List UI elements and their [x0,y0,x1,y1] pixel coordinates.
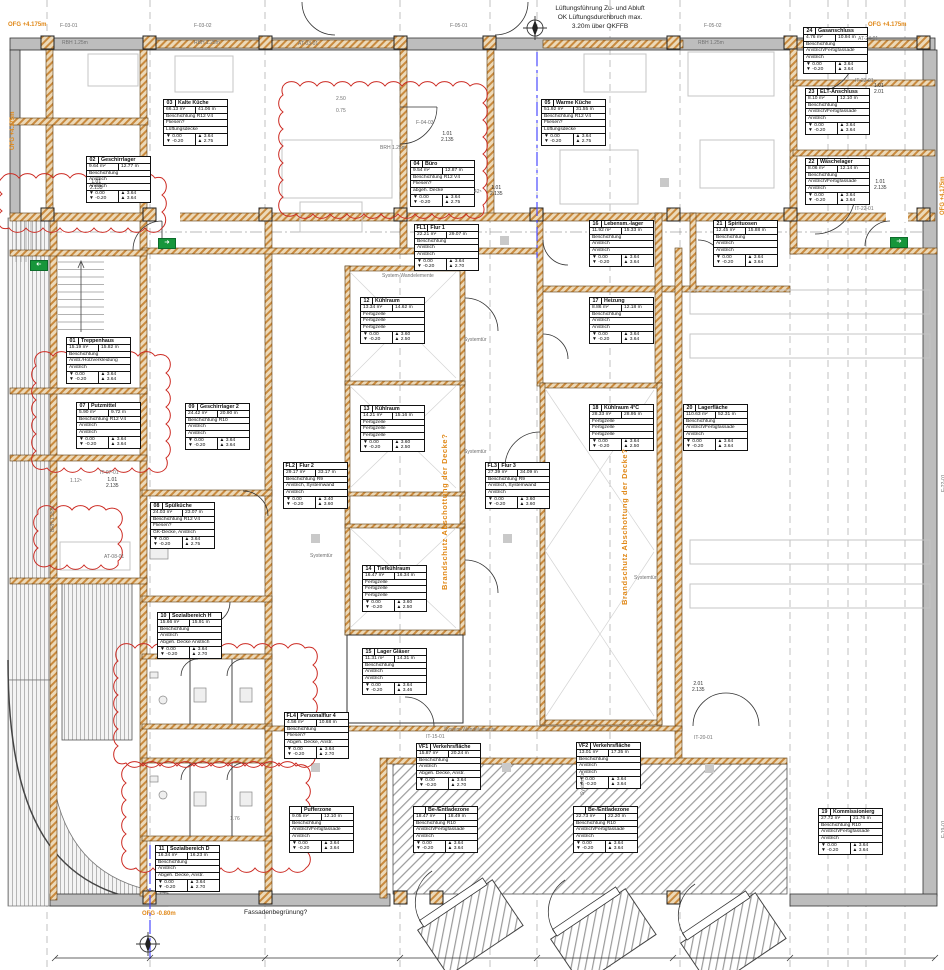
level-floor: ▼ -0.20 [806,198,838,204]
level-ceiling: ▲ 3.64 [218,443,250,449]
room-perimeter: 12.10 m [838,96,869,102]
level-ceiling: ▲ 3.64 [446,846,478,852]
room-finish: Beschichtung [67,352,130,359]
room-perimeter: 15.16 m [393,413,424,419]
annotation-brh1: BRH 1.25m [50,506,56,532]
room-number [574,807,586,813]
level-ceiling: ▲ 2.70 [188,885,220,891]
annotation-f0302: F-03-02 [194,23,212,29]
room-number: 03 [164,100,176,106]
exit-sign-icon: ➜ [890,237,908,248]
room-finish: Abgeh. Decke, Anstr. [417,771,480,778]
room-label-VF1: VF1Verkehrsfläche15.87 m²20.24 mBeschich… [416,743,481,790]
level-floor: ▼ -0.20 [151,542,183,548]
room-finish: Anstrich [67,365,130,372]
room-label-01: 01Treppenhaus15.19 m²15.82 mBeschichtung… [66,337,131,384]
level-floor: ▼ -0.20 [804,67,836,73]
room-finish: Beschichtung R10 [574,821,637,828]
level-ceiling: ▲ 3.64 [622,260,654,266]
annotation-st4: Systemtür [634,575,657,581]
level-ceiling: ▲ 2.70 [449,783,481,789]
room-number: 09 [186,404,198,410]
level-ceiling: ▲ 3.64 [622,337,654,343]
level-floor: ▼ -0.20 [186,443,218,449]
room-finish: Beschichtung [290,821,353,828]
annotation-f0403: F-04-03 [416,120,434,126]
room-perimeter: 10.68 m [317,720,348,726]
room-name: Lagerfläche [696,405,730,411]
level-floor: ▼ -0.20 [361,445,393,451]
room-name: Flur 3 [499,463,517,469]
room-number: FL4 [285,713,298,719]
level-floor: ▼ -0.20 [285,752,317,758]
room-label-04: 04Büro9.54 m²12.87 mBeschichtung R12 V4F… [410,160,475,207]
annotation-it07: IT-07-01 [100,470,119,476]
level-ceiling: ▲ 3.46 [395,688,427,694]
room-perimeter: 52.31 m [716,412,747,418]
annotation-d8: 1.01 2.135 [106,478,119,489]
room-finish: Anstrich, Systemwand [284,483,347,490]
room-finish: Fertigzelle [590,432,653,439]
annotation-at24: AT-24-01 [858,36,878,42]
annotation-ofgL: OFG +4.175m [10,111,16,150]
room-name: Warme Küche [554,100,593,106]
level-floor: ▼ -0.20 [417,783,449,789]
room-name: Flur 1 [428,225,446,231]
room-label-05: 05Warme Küche51.92 m²31.55 mBeschichtung… [541,99,606,146]
room-name: Putzmittel [89,403,118,409]
room-number: 20 [684,405,696,411]
level-floor: ▼ -0.20 [414,846,446,852]
room-finish: Anstrich [806,186,869,193]
room-finish: Anstrich/Fertigfassade [804,48,867,55]
level-floor: ▼ -0.20 [77,442,109,448]
level-floor: ▼ -0.20 [363,605,395,611]
room-finish: Anstrich [363,669,426,676]
room-perimeter: 18.49 m [446,814,477,820]
annotation-ofgB: OFG -0.80m [142,911,176,917]
annotation-d9: 2.50 [336,96,346,102]
room-number: FL3 [486,463,499,469]
level-floor: ▼ -0.20 [164,139,196,145]
room-perimeter: 15.82 m [99,345,130,351]
room-finish: Beschichtung R10 [819,823,882,830]
room-finish: Beschichtung [158,627,221,634]
room-perimeter: 28.95 m [622,412,653,418]
annotation-d6: 1.01 2.135 [874,180,887,191]
room-finish: Beschichtung R9 [284,477,347,484]
room-area: 8.86 m² [590,305,622,311]
room-label-16: 16Lebensm.-lager11.92 m²15.33 mBeschicht… [589,220,654,267]
room-area: 66.13 m² [164,107,196,113]
annotation-it15: IT-15-01 [426,734,445,740]
level-ceiling: ▲ 2.70 [190,652,222,658]
room-finish: Anstrich [415,245,478,252]
room-area: 9.64 m² [87,164,119,170]
room-finish: Anstrich [804,55,867,62]
room-finish: Fertigzelle [361,426,424,433]
room-area: 8.10 m² [806,96,838,102]
room-label-23: 23ELT-Anschluss8.10 m²12.10 mBeschichtun… [805,88,870,135]
room-finish: Anstrich [156,866,219,873]
room-perimeter: 29.07 m [447,232,478,238]
level-ceiling: ▲ 2.75 [574,139,606,145]
level-ceiling: ▲ 3.64 [836,67,868,73]
room-finish: Fliesen? [411,181,474,188]
annotation-d5: 1.01 2.01 [874,84,884,95]
room-perimeter: 9.72 m [109,410,140,416]
level-floor: ▼ -0.20 [156,885,188,891]
room-label-20: 20Lagerfläche110.63 m²52.31 mBeschichtun… [683,404,748,451]
room-label-10: 10Sozialbereich H15.66 m²15.91 mBeschich… [157,612,222,659]
room-name: Tiefkühlraum [375,566,412,572]
room-perimeter: 12.18 m [622,305,653,311]
annotation-st2: Systemtür [464,449,487,455]
room-finish: Anstrich/Fertigfassade [819,829,882,836]
room-finish: Anstrich/Fertigfassade [574,827,637,834]
room-number [414,807,426,813]
level-ceiling: ▲ 3.64 [119,196,151,202]
loading-zone [393,764,787,970]
room-area: 4.56 m² [285,720,317,726]
level-floor: ▼ -0.20 [87,196,119,202]
annotation-rbh2: RBH 1.25m [194,40,220,46]
room-finish: Fertigzelle [361,318,424,325]
room-perimeter: 15.91 m [190,620,221,626]
room-perimeter: 31.55 m [574,107,605,113]
room-area: 15.66 m² [158,620,190,626]
room-perimeter: 12.10 m [322,814,353,820]
staircase [58,261,104,332]
room-finish: Beschichtung R12 V4 [542,114,605,121]
annotation-f0501: F-05-01 [450,23,468,29]
room-finish: Anstrich [574,834,637,841]
room-name: ELT-Anschluss [818,89,860,95]
room-finish: Beschichtung R12 V4 [411,175,474,182]
room-finish: Abgeh. Decke, Anstr. [156,873,219,880]
room-name: Gasanschluss [816,28,856,34]
room-perimeter: 16.23 m [188,853,219,859]
level-ceiling: ▲ 3.60 [518,502,550,508]
room-name: Geschirrlager 2 [198,404,241,410]
room-label-BE1: Be-/Entladezone18.47 m²18.49 mBeschichtu… [413,806,478,853]
room-finish: Anstrich [590,241,653,248]
room-finish: Beschichtung [806,103,869,110]
room-number: 08 [151,503,163,509]
room-number: VF2 [577,743,591,749]
room-finish: Anstrich [284,490,347,497]
annotation-d10: 0.75 [336,108,346,114]
room-finish: Fliesen? [542,120,605,127]
room-finish: Beschichtung R10 [186,418,249,425]
level-floor: ▼ -0.20 [361,337,393,343]
room-area: 27.72 m² [819,816,851,822]
room-name: Lebensm.-lager [602,221,645,227]
room-area: 13.01 m² [577,750,609,756]
annotation-fass: Fassadenbegrünung? [244,909,307,916]
room-finish: Anstrich/Fertigfassade [684,425,747,432]
room-label-24: 24Gasanschluss4.76 m²10.94 mBeschichtung… [803,27,868,74]
room-name: Be-/Entladezone [426,807,471,813]
room-finish: Beschichtung [590,312,653,319]
room-label-07: 07Putzmittel5.90 m²9.72 mBeschichtung R1… [76,402,141,449]
room-number: 10 [158,613,170,619]
room-area: 24.42 m² [186,411,218,417]
room-perimeter: 34.09 m [518,470,549,476]
room-finish: Anstrich [363,676,426,683]
room-finish: Beschichtung [285,727,348,734]
annotation-it22: IT-22-01 [855,206,874,212]
level-ceiling: ▲ 2.50 [393,445,425,451]
annotation-brh2: BRH 1.25m [380,145,406,151]
room-finish: Beschichtung R9 [486,477,549,484]
room-area: 22.73 m² [574,814,606,820]
room-number: 01 [67,338,79,344]
level-ceiling: ▲ 2.75 [443,200,475,206]
annotation-bs2: Brandschutz Abschottung der Decke? [620,449,629,605]
annotation-d7: 1.12⁵ [70,478,82,484]
level-ceiling: ▲ 3.64 [716,444,748,450]
room-number: FL1 [415,225,428,231]
level-floor: ▼ -0.20 [158,652,190,658]
room-finish: Anstrich [590,325,653,332]
room-area: 5.90 m² [77,410,109,416]
room-finish: Anstrich/Fertigfassade [290,827,353,834]
room-number: 07 [77,403,89,409]
annotation-f0502: F-05-02 [704,23,722,29]
room-name: Heizung [602,298,627,304]
room-finish: Anstrich [590,248,653,255]
level-floor: ▼ -0.20 [290,846,322,852]
room-number: 12 [361,298,373,304]
level-ceiling: ▲ 2.50 [393,337,425,343]
level-ceiling: ▲ 3.60 [316,502,348,508]
room-area: 9.54 m² [411,168,443,174]
annotation-d1: 1.01 2.135 [441,132,454,143]
level-ceiling: ▲ 2.75 [196,139,228,145]
room-finish: Abgeh. Decke Anstrich [158,640,221,647]
room-name: Kommissionierg [831,809,877,815]
room-finish: Fliesen? [151,523,214,530]
room-finish: Anstrich/Fertigfassade [414,827,477,834]
room-area: 29.17 m² [284,470,316,476]
annotation-lueft2: OK Lüftungsdurchbruch max. [558,14,643,21]
exit-sign-icon: ➜ [158,238,176,249]
room-label-18: 18Kühlraum 4°C28.33 m²28.95 mFertigzelle… [589,404,654,451]
annotation-it23: IT-23-01 [855,78,874,84]
room-name: Be-/Entladezone [586,807,631,813]
room-perimeter: 23.07 m [183,510,214,516]
room-finish: Anstrich, Systemwand [486,483,549,490]
room-perimeter: 12.87 m [443,168,474,174]
room-finish: Fliesen? [285,733,348,740]
annotation-d3: 1.01 2.135 [490,186,503,197]
annotation-d4: 1.01 2.135 [90,180,103,191]
room-finish: Beschichtung [806,173,869,180]
room-number: 11 [156,846,168,852]
room-number: 13 [361,406,373,412]
room-finish: Anstrich [186,424,249,431]
annotation-swe1: System-Wandelemente [382,273,434,279]
room-finish: Fertigzelle [361,433,424,440]
room-finish: Fertigzelle [361,325,424,332]
level-ceiling: ▲ 3.64 [109,442,141,448]
room-finish: Beschichtung [577,757,640,764]
level-ceiling: ▲ 3.64 [322,846,354,852]
room-finish: Anstrich [577,770,640,777]
room-perimeter: 17.35 m [609,750,640,756]
room-name: Lager Gläser [375,649,411,655]
room-area: 14.21 m² [361,413,393,419]
room-finish: Anstrich [486,490,549,497]
annotation-st1: Systemtür [464,337,487,343]
room-finish: Beschichtung [415,239,478,246]
room-label-11: 11Sozialbereich D16.34 m²16.23 mBeschich… [155,845,220,892]
annotation-st5: Systemtür [580,772,586,795]
room-finish: Anstr./Holzverkleidung [67,358,130,365]
level-floor: ▼ -0.20 [819,848,851,854]
room-label-FL1: FL1Flur 122.21 m²29.07 mBeschichtungAnst… [414,224,479,271]
room-number: 18 [590,405,602,411]
room-name: Sozialbereich H [170,613,213,619]
room-finish: Anstrich/Fertigfassade [806,109,869,116]
room-name: Geschirrlager [99,157,137,163]
room-number: 24 [804,28,816,34]
room-number: 14 [363,566,375,572]
room-label-17: 17Heizung8.86 m²12.18 mBeschichtungAnstr… [589,297,654,344]
level-floor: ▼ -0.20 [806,128,838,134]
room-finish: Beschichtung R12 V4 [164,114,227,121]
level-floor: ▼ -0.20 [363,688,395,694]
room-name: Kühlraum [373,406,402,412]
room-label-09: 09Geschirrlager 224.42 m²20.90 mBeschich… [185,403,250,450]
room-finish: Fertigzelle [361,312,424,319]
room-name: Pufferzone [302,807,333,813]
room-number: 21 [714,221,726,227]
room-finish: Beschichtung [87,171,150,178]
room-finish: Beschichtung [156,860,219,867]
room-name: Kühlraum [373,298,402,304]
level-floor: ▼ -0.20 [590,444,622,450]
room-area: 16.47 m² [363,573,395,579]
room-area: 13.34 m² [361,305,393,311]
room-finish: Beschichtung [714,235,777,242]
room-area: 11.92 m² [590,228,622,234]
level-floor: ▼ -0.20 [684,444,716,450]
annotation-st3: Systemtür [310,553,333,559]
room-label-14: 14Tiefkühlraum16.47 m²16.34 mFertigzelle… [362,565,427,612]
level-floor: ▼ -0.20 [67,377,99,383]
room-name: Büro [423,161,439,167]
room-perimeter: 20.24 m [449,751,480,757]
room-perimeter: 20.90 m [218,411,249,417]
room-finish: Fliesen? [164,120,227,127]
room-area: 8.06 m² [806,166,838,172]
room-finish: Anstrich [414,834,477,841]
room-finish: Anstrich [819,836,882,843]
room-finish: Fertigzelle [363,580,426,587]
room-finish: Beschichtung [804,42,867,49]
room-perimeter: 12.77 m [119,164,150,170]
level-ceiling: ▲ 3.64 [99,377,131,383]
room-area: 18.47 m² [414,814,446,820]
room-finish: Anstrich [577,763,640,770]
doors-layer [114,2,890,780]
room-area: 12.45 m² [714,228,746,234]
terrace-deck [8,218,175,906]
room-label-FL2: FL2Flur 229.17 m²33.17 mBeschichtung R9A… [283,462,348,509]
room-perimeter: 21.76 m [851,816,882,822]
level-ceiling: ▲ 3.64 [838,198,870,204]
level-ceiling: ▲ 3.64 [851,848,883,854]
room-area: 15.19 m² [67,345,99,351]
room-number: VF1 [417,744,431,750]
room-finish: Fertigzelle [363,586,426,593]
room-label-BE2: Be-/Entladezone22.73 m²22.20 mBeschichtu… [573,806,638,853]
room-finish: Anstrich [806,116,869,123]
room-label-22: 22Wäschelager8.06 m²12.14 mBeschichtungA… [805,158,870,205]
room-finish: Anstrich [186,431,249,438]
level-ceiling: ▲ 3.64 [609,782,641,788]
annotation-lueft1: Lüftungsführung Zu- und Abluft [555,5,644,12]
level-floor: ▼ -0.20 [574,846,606,852]
room-name: Personalflur 4 [298,713,337,719]
room-finish: Beschichtung R12 V4 [151,517,214,524]
room-area: 51.92 m² [542,107,574,113]
room-area: 16.34 m² [156,853,188,859]
room-name: Kühlraum 4°C [602,405,641,411]
room-label-13: 13Kühlraum14.21 m²15.16 mFertigzelleFert… [360,405,425,452]
room-finish: Anstrich [714,248,777,255]
room-finish: Fertigzelle [363,593,426,600]
room-perimeter: 12.14 m [838,166,869,172]
level-floor: ▼ -0.20 [590,260,622,266]
room-perimeter: 15.88 m [746,228,777,234]
level-floor: ▼ -0.20 [486,502,518,508]
room-finish: Anstrich [684,432,747,439]
annotation-at03: AT-03-01 [298,41,318,47]
room-number: 15 [363,649,375,655]
room-finish: Fertigzelle [590,425,653,432]
room-finish: Anstrich [417,764,480,771]
room-area: 4.76 m² [804,35,836,41]
room-number: FL2 [284,463,297,469]
room-finish: Anstrich [77,423,140,430]
level-floor: ▼ -0.20 [714,260,746,266]
room-finish: Fertigzelle [361,420,424,427]
room-name: Sozialbereich D [168,846,211,852]
level-ceiling: ▲ 2.70 [447,264,479,270]
level-floor: ▼ -0.20 [415,264,447,270]
room-name: Verkehrsfläche [591,743,633,749]
room-perimeter: 14.62 m [393,305,424,311]
floor-plan-page: 01Treppenhaus15.19 m²15.82 mBeschichtung… [0,0,944,970]
room-number: 05 [542,100,554,106]
room-number: 19 [819,809,831,815]
room-name: Spirituosen [726,221,759,227]
room-finish: abgeh. Decke [411,188,474,195]
annotation-ofgR: OFG +4.175m [940,176,944,215]
room-name: Spülküche [163,503,194,509]
dimension-chain [52,955,938,961]
room-finish: Anstrich [590,318,653,325]
level-floor: ▼ -0.20 [284,502,316,508]
annotation-swe2: System-Wandelemente [444,727,496,733]
room-finish: Fertigzelle [590,419,653,426]
room-perimeter: 14.31 m [395,656,426,662]
room-name: Flur 2 [297,463,315,469]
level-ceiling: ▲ 3.64 [746,260,778,266]
